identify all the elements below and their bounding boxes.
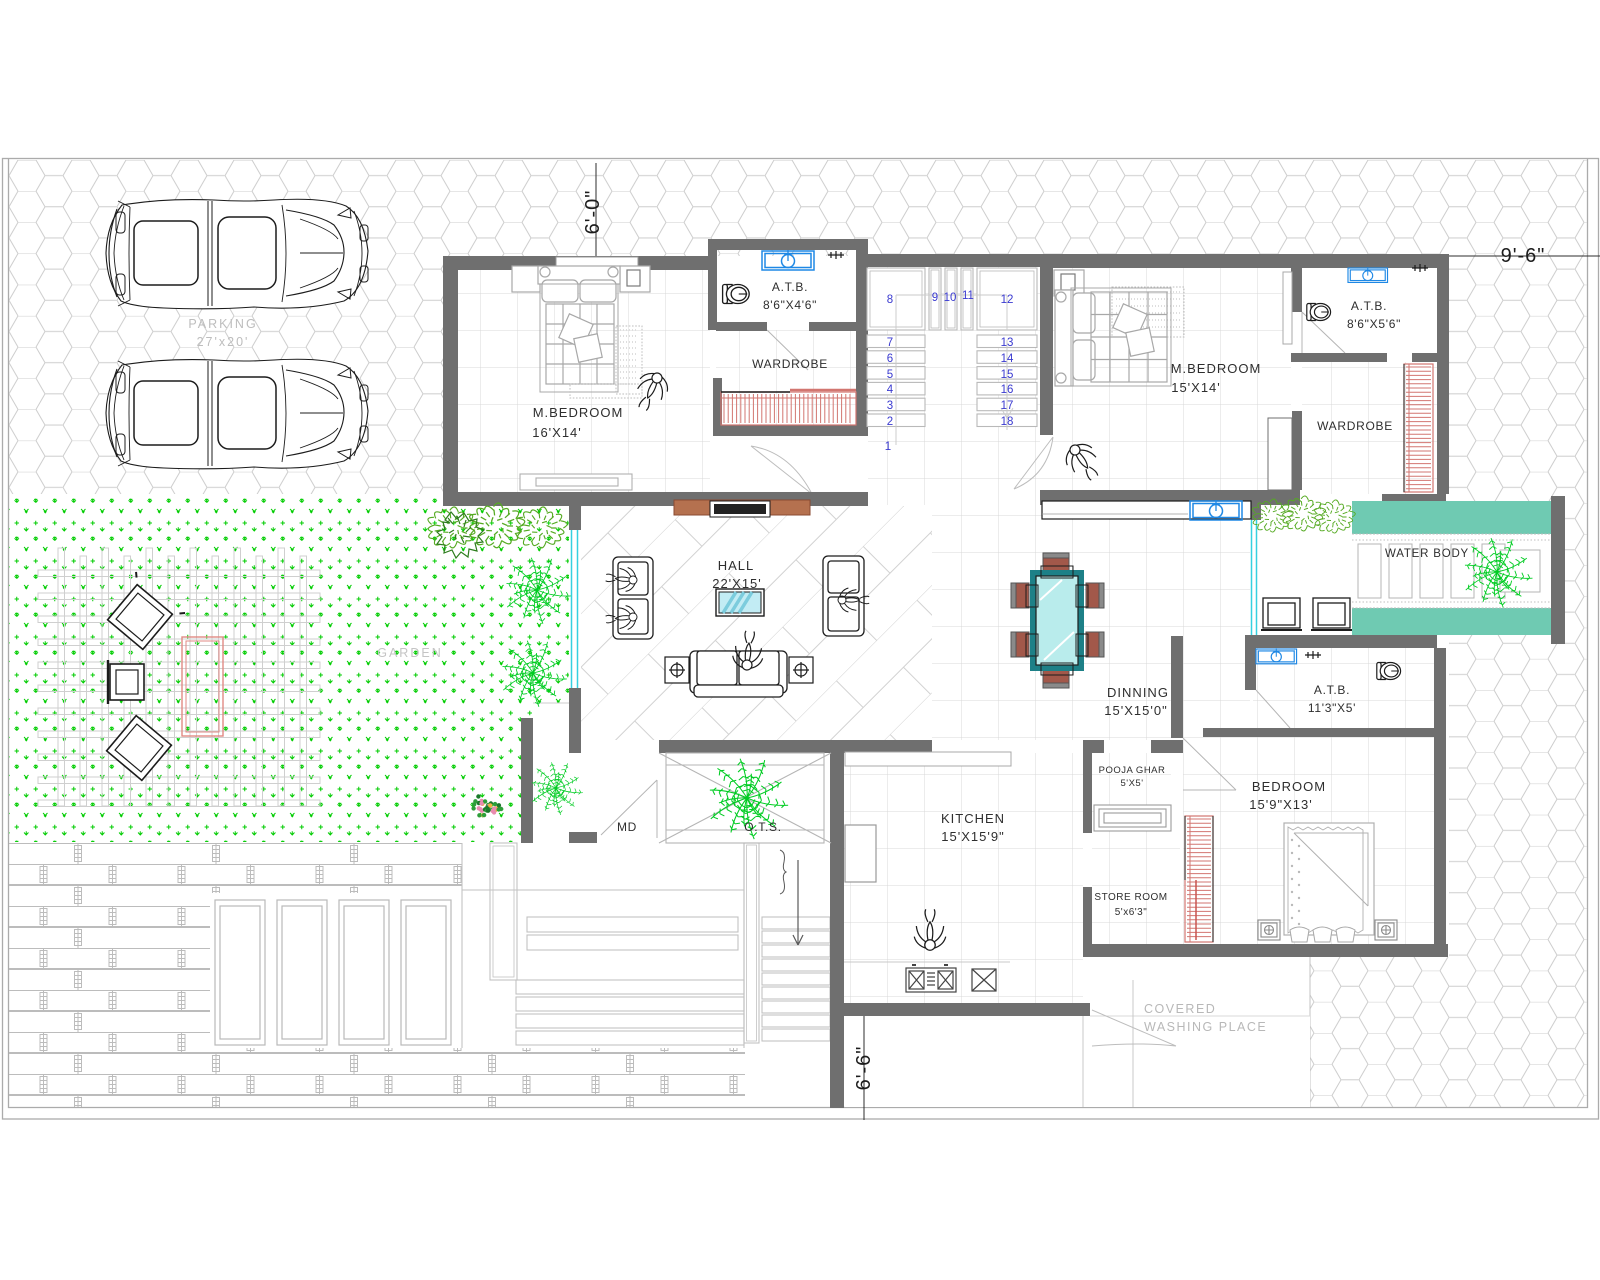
svg-text:9'-6": 9'-6" — [1501, 245, 1546, 267]
svg-text:6: 6 — [887, 353, 893, 365]
svg-text:16: 16 — [1001, 384, 1014, 396]
svg-text:STORE ROOM: STORE ROOM — [1094, 892, 1167, 903]
svg-text:HALL: HALL — [718, 558, 755, 573]
svg-text:O.T.S.: O.T.S. — [744, 820, 782, 834]
svg-text:5'X5': 5'X5' — [1120, 778, 1143, 789]
svg-text:DINNING: DINNING — [1107, 685, 1169, 700]
svg-text:14: 14 — [1001, 353, 1014, 365]
svg-text:13: 13 — [1001, 337, 1014, 349]
svg-text:15'X15'9": 15'X15'9" — [941, 829, 1004, 844]
svg-text:8'6"X5'6": 8'6"X5'6" — [1347, 317, 1401, 331]
svg-text:11: 11 — [962, 290, 974, 302]
svg-text:8: 8 — [887, 294, 893, 306]
svg-text:17: 17 — [1001, 400, 1014, 412]
svg-text:3: 3 — [887, 400, 893, 412]
svg-text:1: 1 — [885, 441, 891, 453]
svg-text:12: 12 — [1001, 294, 1014, 306]
svg-text:9: 9 — [932, 292, 938, 304]
svg-text:18: 18 — [1001, 416, 1014, 428]
svg-text:COVERED: COVERED — [1144, 1002, 1216, 1016]
svg-text:A.T.B.: A.T.B. — [1314, 683, 1350, 697]
svg-text:MD: MD — [617, 820, 637, 834]
svg-text:WATER BODY: WATER BODY — [1385, 548, 1469, 560]
svg-text:KITCHEN: KITCHEN — [941, 811, 1005, 826]
svg-text:6'-6": 6'-6" — [853, 1046, 875, 1091]
svg-text:16'X14': 16'X14' — [532, 425, 582, 440]
svg-text:27'x20': 27'x20' — [197, 335, 250, 349]
svg-text:PARKING: PARKING — [188, 317, 257, 331]
svg-text:6'-0": 6'-0" — [582, 190, 604, 235]
svg-text:7: 7 — [887, 337, 893, 349]
svg-text:GARDEN: GARDEN — [377, 646, 442, 660]
svg-text:8'6"X4'6": 8'6"X4'6" — [763, 298, 817, 312]
svg-text:WARDROBE: WARDROBE — [752, 357, 828, 371]
svg-text:2: 2 — [887, 416, 893, 428]
svg-text:15'X15'0": 15'X15'0" — [1104, 703, 1167, 718]
svg-text:15'X14': 15'X14' — [1171, 380, 1221, 395]
svg-text:M.BEDROOM: M.BEDROOM — [533, 405, 624, 420]
svg-text:5: 5 — [887, 369, 893, 381]
svg-text:15: 15 — [1001, 369, 1014, 381]
svg-text:WARDROBE: WARDROBE — [1317, 419, 1393, 433]
svg-text:15'9"X13': 15'9"X13' — [1249, 797, 1312, 812]
svg-text:10: 10 — [944, 292, 957, 304]
svg-text:A.T.B.: A.T.B. — [772, 280, 808, 294]
svg-text:BEDROOM: BEDROOM — [1252, 779, 1326, 794]
svg-text:A.T.B.: A.T.B. — [1351, 299, 1387, 313]
svg-text:4: 4 — [887, 384, 894, 396]
svg-text:POOJA GHAR: POOJA GHAR — [1099, 765, 1166, 776]
svg-text:M.BEDROOM: M.BEDROOM — [1171, 361, 1262, 376]
svg-text:22'X15': 22'X15' — [712, 576, 762, 591]
svg-text:11'3"X5': 11'3"X5' — [1308, 701, 1356, 715]
svg-text:WASHING PLACE: WASHING PLACE — [1144, 1020, 1267, 1034]
svg-text:5'x6'3": 5'x6'3" — [1115, 907, 1148, 918]
